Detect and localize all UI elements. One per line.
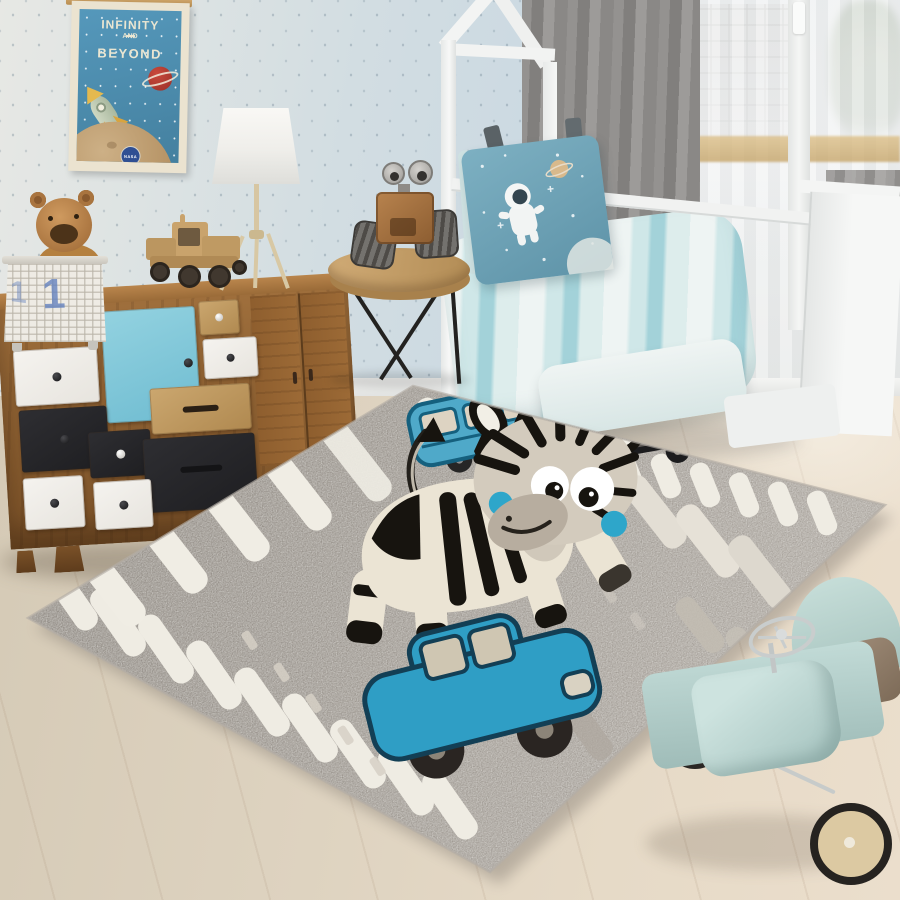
toy-rear-wheel — [810, 803, 892, 885]
mint-ride-on-car — [640, 565, 900, 900]
toy-hood — [689, 657, 845, 780]
kids-room-photo: INFINITY AND BEYOND NASA — [0, 0, 900, 900]
toy-steering-hub — [776, 629, 787, 640]
